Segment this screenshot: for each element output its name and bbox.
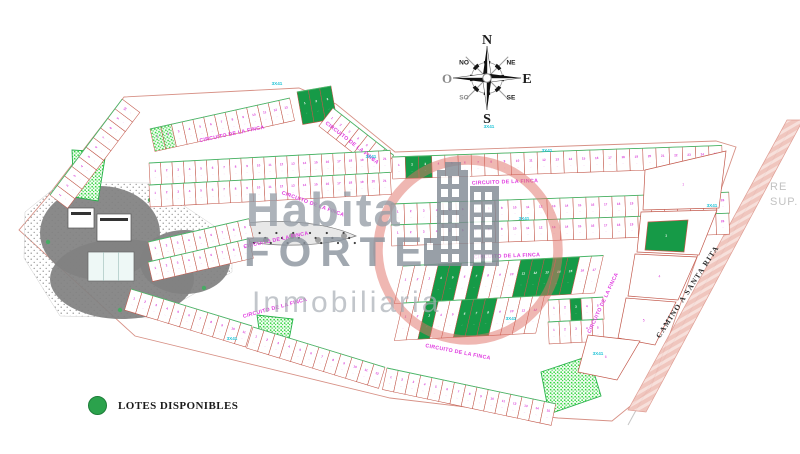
lot-dim-mark: ·· (514, 234, 516, 237)
lot-number: 18 (349, 159, 353, 163)
lot-number: 26 (721, 198, 725, 202)
lot-dim-mark: ·· (517, 166, 519, 169)
compass-o-label: O (442, 71, 452, 86)
lot (333, 175, 346, 198)
lot (252, 157, 265, 180)
lot-number: 17 (608, 155, 612, 159)
lot-dim-mark: ·· (410, 237, 412, 240)
lot (241, 158, 254, 181)
dimension-label: 3X41 (593, 351, 604, 356)
lot-number: 26 (721, 219, 725, 223)
lot (643, 148, 657, 170)
lot-dim-mark: ·· (411, 170, 413, 173)
lot (616, 149, 630, 171)
lot (275, 156, 288, 179)
lot (548, 321, 560, 344)
lot (625, 216, 639, 237)
lot (550, 151, 564, 173)
lot (183, 161, 196, 184)
lot-dim-mark: ·· (361, 187, 363, 190)
lot-dim-mark: ·· (315, 168, 317, 171)
dimension-label: 3X41 (519, 216, 530, 221)
lot (264, 178, 277, 201)
lot (573, 218, 587, 239)
lot (321, 153, 334, 176)
lot-dim-mark: ·· (246, 193, 248, 196)
lot-dim-mark: ·· (618, 209, 620, 212)
lot-dim-mark: ·· (155, 176, 157, 179)
lot-dim-mark: ·· (189, 196, 191, 199)
tree-icon (46, 240, 50, 244)
lot-number: 17 (604, 223, 608, 227)
lot-dim-mark: ·· (304, 168, 306, 171)
lot-number: 18 (617, 223, 621, 227)
lot (206, 181, 219, 204)
lot-dim-mark: ·· (649, 162, 651, 165)
lot-dim-mark: ·· (201, 196, 203, 199)
lot (379, 172, 392, 195)
lot-number: 12 (539, 226, 543, 230)
lot-dim-mark: ·· (410, 216, 412, 219)
dimension-label: 3X41 (272, 81, 283, 86)
lot (559, 299, 571, 322)
lot (218, 181, 231, 204)
lot-dim-mark: ·· (575, 312, 577, 315)
lot (521, 220, 535, 241)
lot-dim-mark: ·· (543, 165, 545, 168)
lot (573, 197, 587, 218)
lot-dim-mark: ·· (178, 197, 180, 200)
lot-number: 10 (257, 163, 261, 167)
legend-label: LOTES DISPONIBLES (118, 400, 238, 412)
lot-number: 15 (578, 203, 582, 207)
lot (160, 184, 173, 207)
lot-dim-mark: ·· (201, 174, 203, 177)
lot-number: 14 (565, 225, 569, 229)
lot (298, 155, 311, 178)
lot-number: 13 (291, 184, 295, 188)
lot (716, 213, 730, 234)
lot-dim-mark: ·· (235, 194, 237, 197)
lot-number: 14 (569, 157, 573, 161)
lot-dim-mark: ·· (514, 213, 516, 216)
available-lot (570, 298, 582, 321)
lot-number: 16 (591, 203, 595, 207)
lot (172, 161, 185, 184)
lot (577, 150, 591, 172)
lot (195, 182, 208, 205)
lot (367, 173, 380, 196)
lot (206, 159, 219, 182)
lot (570, 320, 582, 343)
lot-dim-mark: ·· (361, 165, 363, 168)
dimension-label: 3X41 (542, 148, 553, 153)
lot-dim-mark: ·· (178, 175, 180, 178)
lot-dim-mark: ·· (397, 238, 399, 241)
lot-dim-mark: ·· (631, 209, 633, 212)
lot-dim-mark: ·· (258, 193, 260, 196)
lot (344, 174, 357, 197)
lot-dim-mark: ·· (631, 230, 633, 233)
lot-dim-mark: ·· (586, 312, 588, 315)
tree-icon (202, 286, 206, 290)
lot (252, 179, 265, 202)
lot (524, 152, 538, 174)
lot-dim-mark: ·· (373, 187, 375, 190)
lot-number: 17 (604, 202, 608, 206)
lot-number: 11 (268, 163, 272, 167)
compass-e-label: E (522, 72, 531, 87)
pool (88, 252, 134, 281)
lot (195, 160, 208, 183)
lot-number: 15 (582, 156, 586, 160)
lot-dim-mark: ·· (583, 164, 585, 167)
lot-dim-mark: ·· (579, 210, 581, 213)
lot-number: 19 (630, 222, 634, 226)
lot (560, 198, 574, 219)
lot-dim-mark: ·· (338, 189, 340, 192)
lot-number: 5 (643, 319, 645, 323)
lot-dim-mark: ·· (166, 176, 168, 179)
lot (560, 219, 574, 240)
lot-dim-mark: ·· (350, 188, 352, 191)
lot (229, 180, 242, 203)
lot (563, 151, 577, 173)
lot-number: 20 (648, 154, 652, 158)
lot-number: 11 (526, 205, 530, 209)
compass-ne-label: NE (506, 60, 516, 67)
compass-s-label: S (483, 112, 491, 127)
lot (590, 150, 604, 172)
lot-dim-mark: ·· (722, 226, 724, 229)
lot-number: 16 (326, 160, 330, 164)
lot (333, 153, 346, 176)
adjacent-parcel-text: RE SUP. (770, 180, 798, 210)
lot-dim-mark: ·· (564, 313, 566, 316)
legend: LOTES DISPONIBLES (88, 396, 238, 415)
lot-number: 21 (383, 157, 387, 161)
lot-dim-mark: ·· (212, 173, 214, 176)
lot-number: 15 (314, 160, 318, 164)
lot-dim-mark: ·· (397, 217, 399, 220)
lot-dim-mark: ·· (618, 230, 620, 233)
lot-number: 17 (337, 159, 341, 163)
lot-dim-mark: ·· (622, 163, 624, 166)
lot-number: 11 (529, 158, 533, 162)
lot-dim-mark: ·· (350, 166, 352, 169)
lot (534, 220, 548, 241)
lot-dim-mark: ·· (566, 232, 568, 235)
lot-dim-mark: ·· (564, 335, 566, 338)
lot-number: 16 (595, 156, 599, 160)
lot-number: 19 (360, 180, 364, 184)
lot (356, 174, 369, 197)
lot-number: 18 (349, 181, 353, 185)
street-label: CIRCUITO DE LA FINCA (242, 297, 308, 320)
compass-n-label: N (482, 33, 492, 48)
lot (586, 197, 600, 218)
lot-number: 10 (257, 185, 261, 189)
lot-number: 3 (665, 234, 667, 238)
lot-dim-mark: ·· (223, 173, 225, 176)
lot-number: 14 (303, 161, 307, 165)
lot (379, 150, 392, 173)
lot-dim-mark: ·· (398, 170, 400, 173)
lot-dim-mark: ·· (501, 234, 503, 237)
lot (344, 152, 357, 175)
lot-dim-mark: ·· (155, 198, 157, 201)
lot-dim-mark: ·· (384, 186, 386, 189)
lot-number: 18 (621, 155, 625, 159)
lot-row: 1··2··3··4··5··6··7··8··9··10··11··12··1… (382, 368, 555, 425)
lot-row: 1··2··3··4··5··6··7··8··9··10··11··12·· (247, 327, 385, 388)
dimension-label: 3X41 (707, 203, 718, 208)
lot-number: 19 (360, 158, 364, 162)
lot (599, 196, 613, 217)
lot-dim-mark: ·· (423, 216, 425, 219)
lot-dim-mark: ·· (553, 335, 555, 338)
lot (586, 218, 600, 239)
lot (264, 156, 277, 179)
lot-number: 14 (565, 204, 569, 208)
lot-dim-mark: ·· (592, 210, 594, 213)
lot-number: 13 (555, 157, 559, 161)
compass-se-label: SE (507, 95, 516, 102)
lot-dim-mark: ·· (338, 167, 340, 170)
lot-dim-mark: ·· (662, 161, 664, 164)
lot (321, 175, 334, 198)
lot-number: 10 (513, 205, 517, 209)
lot-number: 10 (513, 226, 517, 230)
lot-number: 4 (659, 275, 661, 279)
lot-number: 11 (526, 226, 530, 230)
compass-rose: NSEONONESOSE (442, 33, 532, 127)
lot (625, 195, 639, 216)
lot (559, 321, 571, 344)
lot-number: 15 (578, 224, 582, 228)
street-label: CIRCUITO DE LA FINCA (425, 343, 491, 362)
lot (599, 217, 613, 238)
lot-dim-mark: ·· (292, 169, 294, 172)
lot-dim-mark: ·· (166, 198, 168, 201)
lot-dim-mark: ·· (530, 166, 532, 169)
lot-dim-mark: ·· (605, 230, 607, 233)
lot (581, 298, 593, 321)
lot-dim-mark: ·· (501, 213, 503, 216)
lot (612, 196, 626, 217)
lot-number: 11 (268, 185, 272, 189)
lot (149, 184, 162, 207)
lot-number: 18 (617, 202, 621, 206)
lot-number: 19 (630, 201, 634, 205)
lot (149, 162, 162, 185)
lot (603, 149, 617, 171)
dimension-label: 3X41 (366, 154, 377, 159)
lot-dim-mark: ·· (575, 334, 577, 337)
lot-number: 13 (291, 162, 295, 166)
lot-number: 16 (591, 224, 595, 228)
lot-dim-mark: ·· (557, 165, 559, 168)
lot-dim-mark: ·· (246, 171, 248, 174)
lot-dim-mark: ·· (327, 167, 329, 170)
lot (310, 154, 323, 177)
adjacent-parcel-line1: RE (770, 180, 798, 195)
lot (218, 159, 231, 182)
adjacent-parcel-line2: SUP. (770, 195, 798, 210)
lot-dim-mark: ·· (269, 170, 271, 173)
lot (404, 203, 418, 224)
lot-dim-mark: ·· (540, 212, 542, 215)
dimension-label: 3X41 (506, 316, 517, 321)
lot-number: 1 (682, 183, 684, 187)
lot-dim-mark: ·· (527, 212, 529, 215)
lot-dim-mark: ·· (540, 233, 542, 236)
lot (508, 220, 522, 241)
lot-dim-mark: ·· (327, 189, 329, 192)
lot-dim-mark: ·· (553, 313, 555, 316)
lot-dim-mark: ·· (258, 171, 260, 174)
lot-number: 22 (674, 153, 678, 157)
lot-dim-mark: ·· (189, 174, 191, 177)
lot-dim-mark: ·· (373, 165, 375, 168)
lot-dim-mark: ·· (235, 172, 237, 175)
lot (160, 162, 173, 185)
lot (229, 158, 242, 181)
lot-dim-mark: ·· (477, 168, 479, 171)
lot-number: 12 (280, 184, 284, 188)
lot-number: 23 (687, 153, 691, 157)
lot-number: 10 (516, 159, 520, 163)
lot-row: 1··2··3··4··5··6··7··8··9··10··11··12··1… (150, 98, 295, 151)
lot (310, 176, 323, 199)
lot-dim-mark: ·· (570, 164, 572, 167)
lot (612, 217, 626, 238)
lot-dim-mark: ·· (384, 164, 386, 167)
lot (537, 151, 551, 173)
dimension-label: 3X41 (227, 336, 238, 341)
lot (183, 183, 196, 206)
lot-dim-mark: ·· (597, 333, 599, 336)
lot-number: 17 (337, 181, 341, 185)
lot-number: 16 (326, 182, 330, 186)
lot-dim-mark: ·· (223, 195, 225, 198)
lot-dim-mark: ·· (579, 231, 581, 234)
lot-number: 21 (661, 154, 665, 158)
lot-dim-mark: ·· (281, 170, 283, 173)
lot-dim-mark: ·· (315, 190, 317, 193)
lot-number: 21 (383, 179, 387, 183)
lot-dim-mark: ·· (609, 163, 611, 166)
site-plan-page: 1··2··3··4··5··6··7··8··9··10··1··2··3··… (0, 0, 800, 454)
lot (287, 155, 300, 178)
available-lot-swatch-icon (88, 396, 107, 415)
tree-icon (118, 308, 122, 312)
compass-so-label: SO (459, 95, 468, 102)
lot (241, 180, 254, 203)
lot-dim-mark: ·· (304, 190, 306, 193)
lot-number: 14 (303, 183, 307, 187)
lot-dim-mark: ·· (566, 211, 568, 214)
lot-dim-mark: ·· (596, 163, 598, 166)
lot-dim-mark: ·· (722, 205, 724, 208)
lot-number: 6 (605, 355, 607, 359)
lot (392, 157, 406, 179)
lot-number: 12 (542, 158, 546, 162)
lot (391, 225, 405, 246)
lot-dim-mark: ·· (605, 209, 607, 212)
lot (578, 335, 640, 380)
lot-number: 24 (701, 152, 705, 156)
lot (629, 148, 643, 170)
lot (172, 183, 185, 206)
lot (548, 299, 560, 322)
lot-dim-mark: ·· (527, 233, 529, 236)
subdivision-svg: 1··2··3··4··5··6··7··8··9··10··1··2··3··… (0, 0, 800, 454)
lot (404, 224, 418, 245)
lot-number: 19 (635, 155, 639, 159)
lot-dim-mark: ·· (636, 162, 638, 165)
lot-dim-mark: ·· (212, 195, 214, 198)
lot-dim-mark: ·· (269, 192, 271, 195)
compass-no-label: NO (459, 60, 469, 67)
lot-number: 15 (314, 182, 318, 186)
lot-dim-mark: ·· (592, 231, 594, 234)
lot-number: 20 (372, 179, 376, 183)
lot (417, 203, 431, 224)
lot-number: 12 (280, 162, 284, 166)
